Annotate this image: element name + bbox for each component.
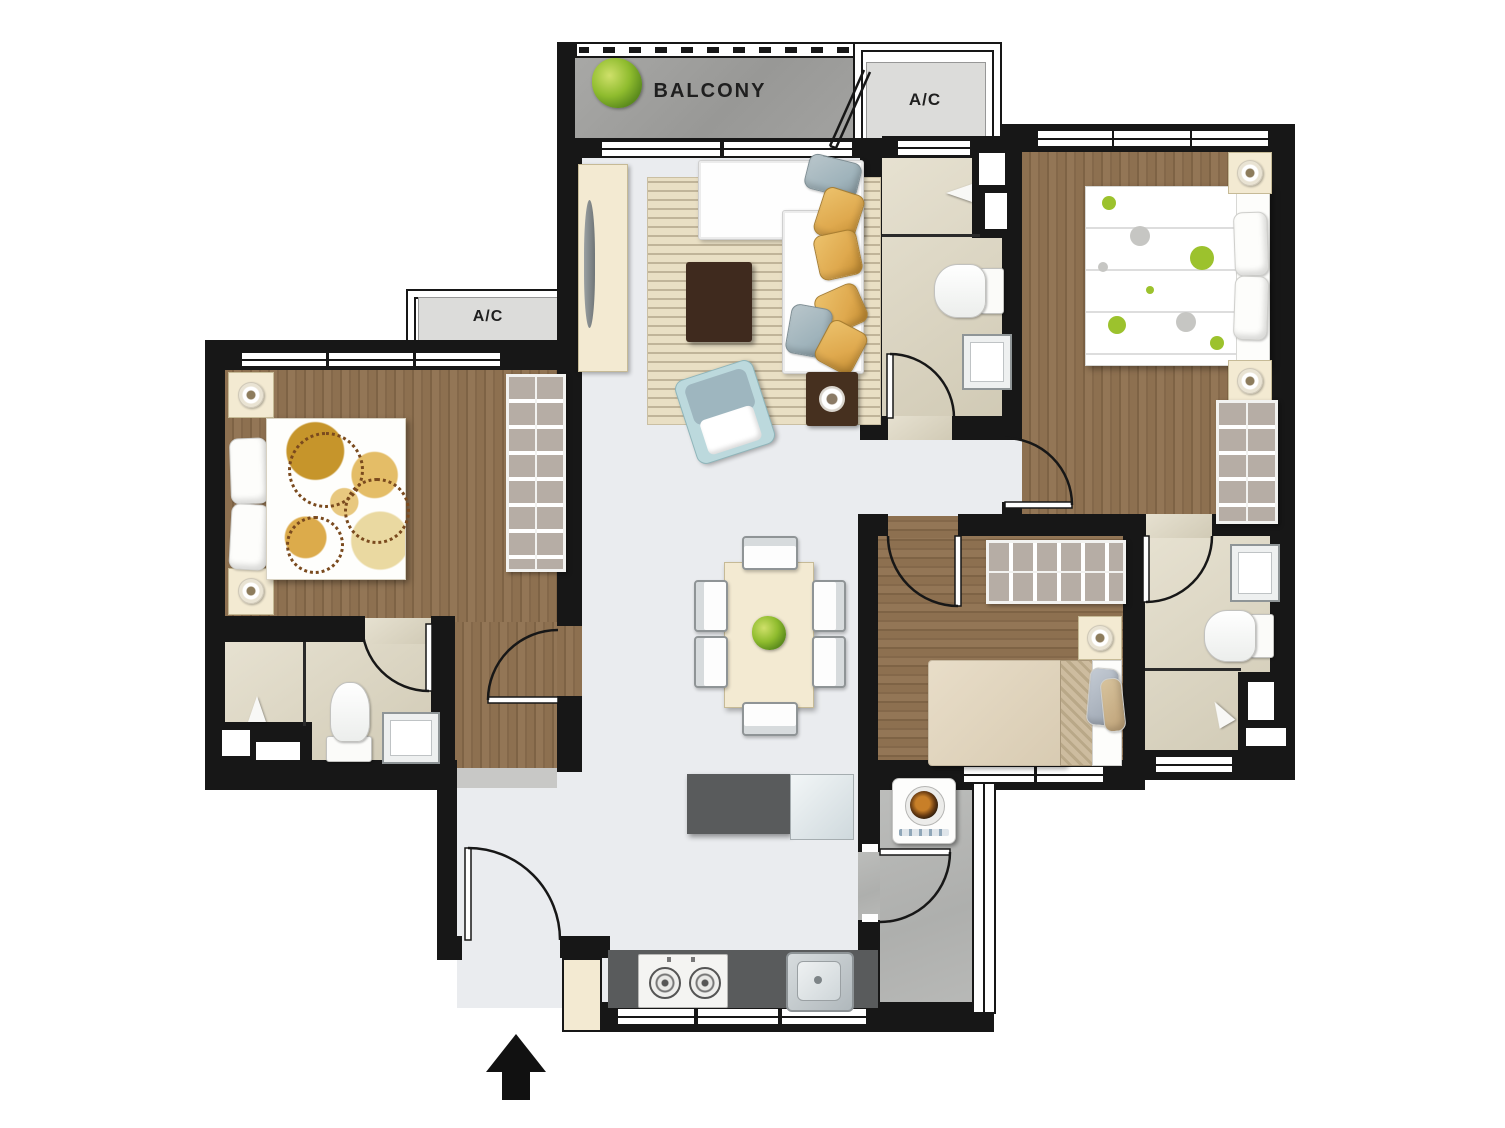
shaft-bath1-b [985, 193, 1007, 229]
vent-bath3-a [222, 730, 250, 756]
wall-bath1-bottom-b [952, 416, 1022, 440]
duvet-dot [1176, 312, 1196, 332]
bath2-sink-basin [1238, 552, 1272, 594]
bath1-shower-head-icon [946, 184, 972, 202]
duvet-dot [1102, 196, 1116, 210]
bedroom-left-wardrobe [506, 374, 566, 572]
wall-mid-horizontal-b [958, 514, 1146, 536]
wall-bath3-bottom [205, 760, 457, 790]
bath1-toilet-bowl [934, 264, 986, 318]
master-pillow-2 [1233, 275, 1269, 340]
gas-stove [638, 954, 728, 1008]
wall-mid-horizontal-a [858, 514, 888, 536]
window-master-b [1112, 129, 1192, 148]
stove-knobs [667, 957, 701, 962]
coffee-table [686, 262, 752, 342]
dining-plant [752, 616, 786, 650]
bedroom-left-pillow-2 [228, 503, 269, 571]
side-table-bowl [819, 386, 845, 412]
bath3-toilet-bowl [330, 682, 370, 742]
corridor-floor [582, 432, 1002, 516]
kitchen-sink-faucet [814, 976, 822, 984]
bath3-sink-basin [390, 720, 432, 756]
washer-controls [899, 829, 949, 836]
window-master-c [1190, 129, 1270, 148]
duvet-dot [1108, 316, 1126, 334]
bath2-toilet-bowl [1204, 610, 1256, 662]
window-bedroom-left-c [414, 351, 502, 368]
dining-chair-left-2 [694, 636, 728, 688]
doorframe-utility-a [862, 844, 878, 852]
stove-burner-left [649, 967, 681, 999]
bedroom3-lamp [1087, 625, 1113, 651]
master-doorway-floor [1002, 432, 1022, 502]
vestibule-threshold [455, 768, 557, 788]
window-bath2 [1154, 755, 1234, 774]
floor-plan: BALCONY A/C A/C [0, 0, 1505, 1128]
master-pillow-1 [1233, 211, 1269, 276]
dining-chair-bottom [742, 702, 798, 736]
bedroom3-doorway-floor [888, 516, 958, 538]
window-bedroom3-a [962, 765, 1036, 784]
washer-drum [910, 791, 938, 819]
window-bedroom-left-a [240, 351, 328, 368]
duvet-dot [1098, 262, 1108, 272]
balcony-label: BALCONY [620, 80, 800, 103]
ac-top-label: A/C [866, 90, 984, 110]
window-bedroom3-b [1035, 765, 1105, 784]
dining-chair-right-1 [812, 580, 846, 632]
bedroom-left-lamp-bottom [238, 578, 264, 604]
bath3-shower-head-icon [248, 696, 266, 722]
entry-pillar-cabinet [562, 958, 602, 1032]
bedroom-left-vestibule-floor [455, 622, 557, 770]
wall-bedroom3-bath2 [1123, 536, 1145, 766]
dining-chair-top [742, 536, 798, 570]
duvet-dot [1190, 246, 1214, 270]
bathroom2-doorway-floor [1146, 514, 1212, 538]
wall-hall-left [437, 770, 457, 960]
utility-doorway-floor [858, 852, 880, 920]
dining-chair-right-2 [812, 636, 846, 688]
entrance-arrow-shaft [502, 1070, 530, 1100]
window-kitchen-b [696, 1007, 780, 1026]
window-bedroom-left-b [327, 351, 415, 368]
window-living-b [722, 140, 854, 158]
shaft-bath2-a [1248, 682, 1274, 720]
bedroom3-wardrobe [986, 540, 1126, 604]
wall-bedroom-left-right-b [557, 696, 582, 772]
window-bath1 [896, 139, 972, 157]
bath2-shower-divider [1145, 668, 1241, 671]
entry-doorway-floor [457, 936, 560, 960]
duvet-dot [1146, 286, 1154, 294]
wall-hall-bottom-corner [437, 936, 462, 960]
wall-hall-utility-a [858, 770, 880, 852]
balcony-railing [575, 42, 855, 58]
dining-chair-left-1 [694, 580, 728, 632]
wall-kitchen-pillar-top [560, 936, 610, 958]
shaft-bath1-a [979, 153, 1005, 185]
bedroom-left-pillow-1 [229, 437, 269, 504]
bath1-shower-divider [882, 234, 980, 237]
doorframe-utility-b [862, 914, 878, 922]
kitchen-island-glass-top [790, 774, 854, 840]
entrance-arrow-icon [486, 1034, 546, 1072]
washing-machine [892, 778, 956, 844]
wall-bedroom-bath3-a [222, 616, 365, 642]
bathroom1-doorway-floor [888, 416, 952, 440]
wall-dining-bedroom3 [858, 536, 878, 770]
kitchen-sink [786, 952, 854, 1012]
tv [584, 200, 595, 328]
master-wardrobe [1216, 400, 1278, 524]
kitchen-island [687, 774, 790, 834]
stove-burner-right [689, 967, 721, 999]
bath3-sink [382, 712, 440, 764]
bath1-sink [962, 334, 1012, 390]
bath2-sink [1230, 544, 1280, 602]
bedroom-left-doorway-floor [557, 626, 582, 696]
side-table [806, 372, 858, 426]
window-living-a [600, 140, 722, 158]
sofa-pillow-gold-2 [812, 228, 865, 282]
master-lamp-bottom [1237, 368, 1263, 394]
window-master-a [1036, 129, 1114, 148]
shaft-bath2-b [1246, 728, 1286, 746]
duvet-dot [1130, 226, 1150, 246]
duvet-ring [286, 516, 344, 574]
vent-bath3-b [256, 742, 300, 760]
duvet-dot [1210, 336, 1224, 350]
utility-slider-frame [972, 770, 996, 1014]
bath3-shower-divider [303, 642, 306, 726]
bath1-sink-basin [970, 342, 1004, 382]
window-kitchen-a [616, 1007, 696, 1026]
ac-left-label: A/C [418, 308, 558, 326]
master-lamp-top [1237, 160, 1263, 186]
bathroom3-doorway-floor [365, 618, 431, 644]
bedroom3-bed-duvet [928, 660, 1066, 766]
duvet-ring [344, 478, 410, 544]
bedroom-left-lamp-top [238, 382, 264, 408]
